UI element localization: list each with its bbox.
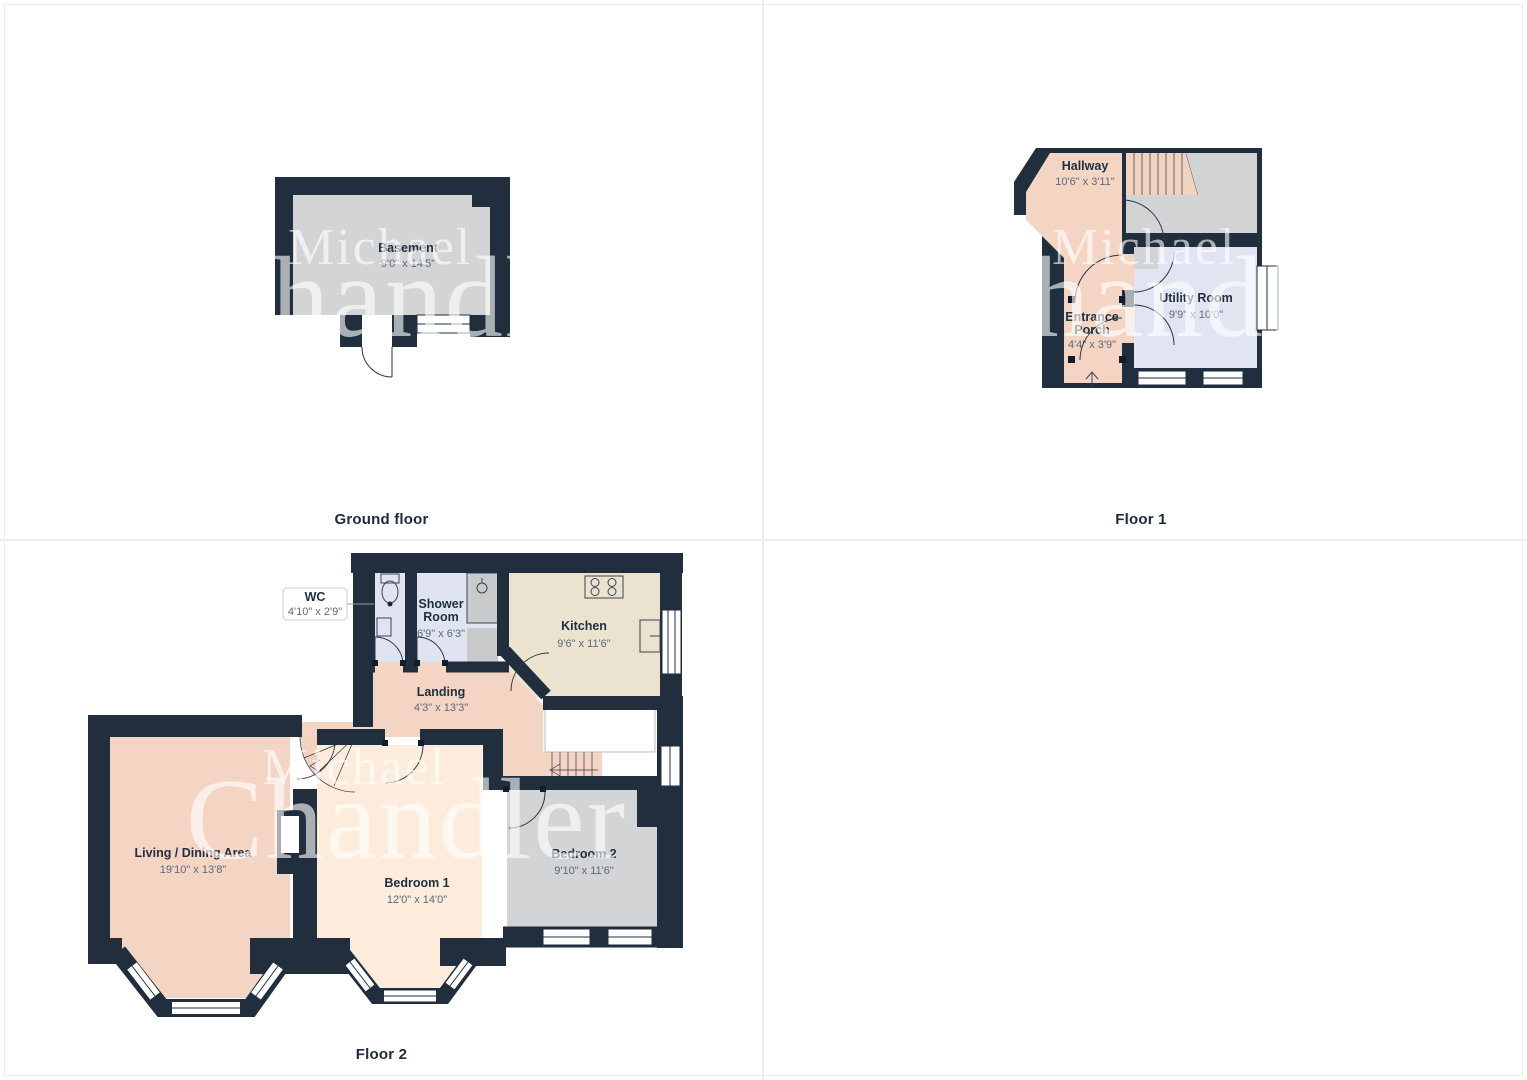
room-label-kitchen: Kitchen: [561, 619, 607, 633]
room-dims-utility: 9'9" x 10'0": [1169, 309, 1223, 321]
floor1-stairs: [1126, 153, 1198, 195]
basement-door-arc: [362, 347, 392, 377]
room-label-basement: Basement: [378, 241, 439, 255]
quadrant-divider-horizontal: [0, 539, 1527, 541]
room-dims-kitchen: 9'6" x 11'6": [557, 638, 610, 650]
room-basement: Basement 9'0" x 14'5": [275, 177, 510, 377]
utility-door-opening-top: [1122, 254, 1134, 290]
room-label-shower-line1: Shower: [418, 597, 463, 611]
cupboard: [467, 628, 498, 662]
floorplan-page: Basement 9'0" x 14'5": [0, 0, 1527, 1080]
ground-floor-plan: Basement 9'0" x 14'5": [265, 170, 520, 400]
room-dims-basement: 9'0" x 14'5": [381, 258, 435, 270]
basement-door-opening: [362, 315, 392, 347]
room-dims-porch: 4'4" x 3'9": [1068, 339, 1116, 351]
room-label-bedroom1: Bedroom 1: [384, 876, 449, 890]
room-label-porch-line1: Entrance: [1065, 310, 1119, 324]
wc-floor: [375, 573, 405, 665]
room-dims-wc: 4'10" x 2'9": [288, 606, 342, 618]
floor-2-plan: WC 4'10" x 2'9" Shower Room 6'9" x 6'3" …: [85, 550, 685, 1030]
room-label-shower-line2: Room: [423, 610, 458, 624]
utility-step: [1134, 247, 1158, 269]
room-label-living: Living / Dining Area: [135, 846, 253, 860]
room-label-landing: Landing: [417, 685, 466, 699]
room-dims-bedroom2: 9'10" x 11'6": [554, 865, 614, 877]
room-dims-bedroom1: 12'0" x 14'0": [387, 894, 447, 906]
floor-title-floor2: Floor 2: [0, 1046, 763, 1063]
room-label-wc: WC: [305, 590, 326, 604]
utility-door-opening-bottom: [1122, 307, 1134, 343]
room-dims-hallway: 10'6" x 3'11": [1055, 176, 1115, 188]
basement-corner-wall: [470, 315, 510, 337]
room-dims-living: 19'10" x 13'8": [160, 864, 227, 876]
room-utility: [1134, 247, 1257, 368]
basement-floor: [293, 195, 472, 315]
room-label-utility: Utility Room: [1159, 291, 1233, 305]
room-label-porch-line2: Porch: [1074, 323, 1109, 337]
floor-1-plan: Hallway 10'6" x 3'11" Utility Room 9'9" …: [1005, 142, 1297, 398]
fireplace: [281, 816, 299, 853]
toilet-flush: [388, 602, 393, 607]
room-dims-shower: 6'9" x 6'3": [417, 628, 465, 640]
floor-title-ground: Ground floor: [0, 511, 763, 528]
room-dims-landing: 4'3" x 13'3": [414, 702, 468, 714]
room-label-hallway: Hallway: [1062, 159, 1109, 173]
stairwell-void: [545, 706, 655, 752]
room-label-bedroom2: Bedroom 2: [551, 847, 616, 861]
stairs-floor: [1126, 153, 1198, 195]
basement-floor-notch: [472, 207, 490, 315]
floor-title-floor1: Floor 1: [763, 511, 1519, 528]
